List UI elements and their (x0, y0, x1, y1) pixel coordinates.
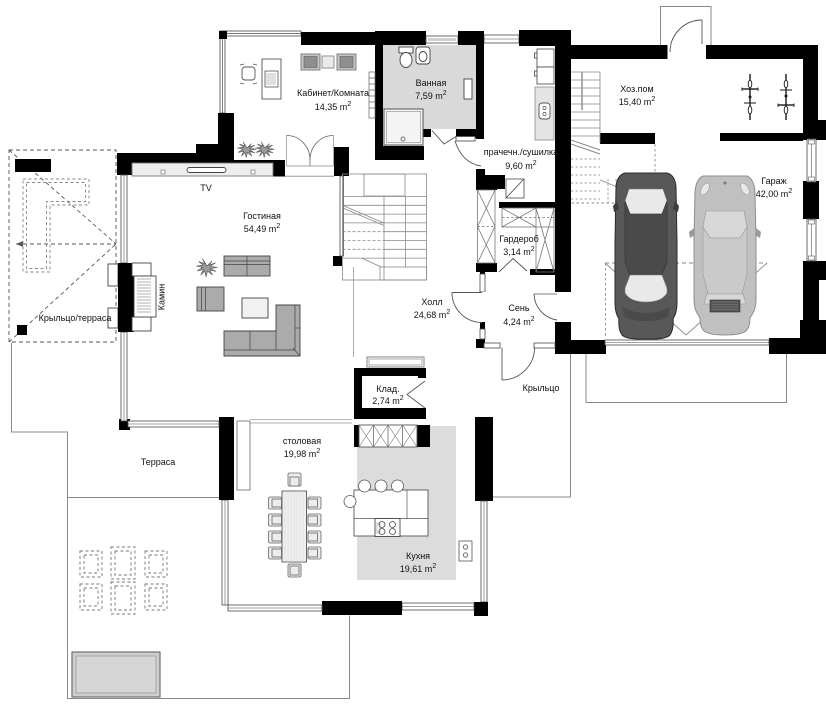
svg-text:TV: TV (200, 183, 212, 193)
svg-text:19,98 m2: 19,98 m2 (284, 448, 321, 459)
svg-text:Клад.: Клад. (376, 384, 399, 394)
svg-text:9,60 m2: 9,60 m2 (505, 160, 537, 171)
svg-text:24,68 m2: 24,68 m2 (414, 309, 451, 320)
svg-text:Ванная: Ванная (416, 78, 447, 88)
svg-text:Хоз.пом: Хоз.пом (620, 84, 654, 94)
svg-text:Крыльцо: Крыльцо (523, 383, 560, 393)
svg-text:4,24 m2: 4,24 m2 (503, 316, 535, 327)
svg-text:столовая: столовая (283, 436, 321, 446)
svg-text:7,59 m2: 7,59 m2 (415, 90, 447, 101)
svg-text:Сень: Сень (508, 303, 529, 313)
svg-text:прачечн./сушилка: прачечн./сушилка (484, 147, 558, 157)
svg-text:2,74 m2: 2,74 m2 (372, 395, 404, 406)
svg-text:Кабинет/Комната: Кабинет/Комната (297, 88, 369, 98)
svg-text:14,35 m2: 14,35 m2 (315, 101, 352, 112)
svg-text:15,40 m2: 15,40 m2 (619, 96, 656, 107)
svg-text:Терраса: Терраса (141, 457, 176, 467)
svg-text:42,00 m2: 42,00 m2 (756, 188, 793, 199)
svg-text:Крыльцо/терраса: Крыльцо/терраса (39, 313, 112, 323)
svg-text:Гараж: Гараж (761, 176, 786, 186)
svg-text:3,14 m2: 3,14 m2 (503, 246, 535, 257)
svg-text:Кухня: Кухня (406, 551, 430, 561)
svg-text:Камин: Камин (157, 284, 167, 310)
svg-text:Холл: Холл (421, 297, 442, 307)
svg-text:Гардероб: Гардероб (499, 234, 539, 244)
svg-text:Гостиная: Гостиная (243, 211, 281, 221)
svg-text:19,61 m2: 19,61 m2 (400, 563, 437, 574)
svg-text:54,49 m2: 54,49 m2 (244, 223, 281, 234)
